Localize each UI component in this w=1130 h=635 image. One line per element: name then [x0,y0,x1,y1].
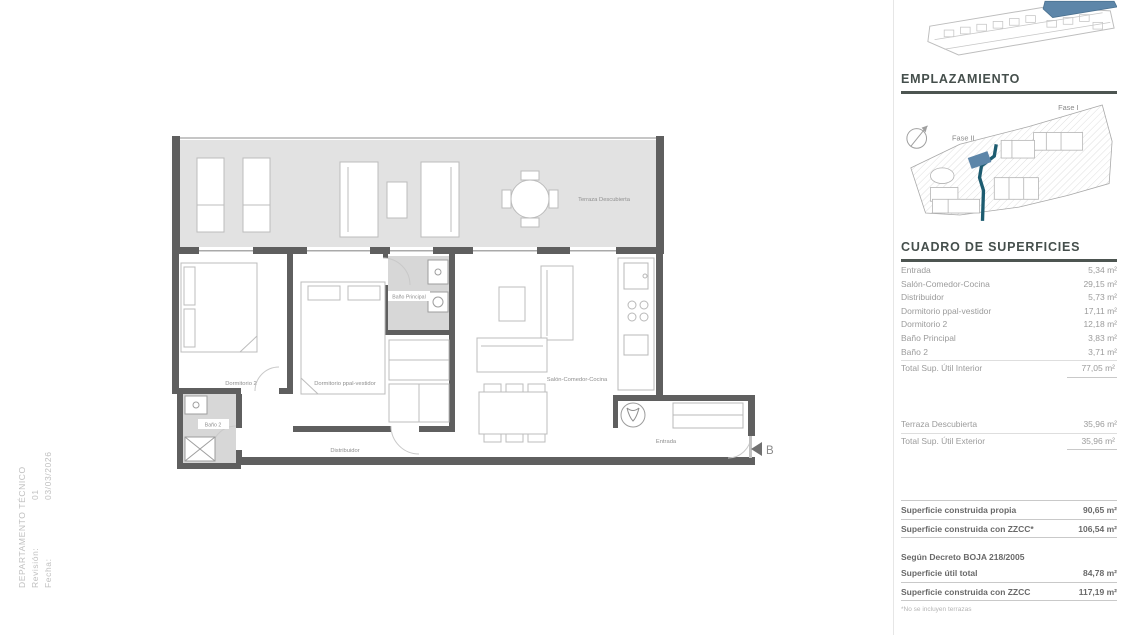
label-distribuidor: Distribuidor [330,448,359,454]
terrace-sofa [340,162,378,237]
pillow [308,286,340,300]
footnote: *No se incluyen terrazas [901,606,1117,613]
entrance-fittings [621,403,743,428]
chair [506,384,523,392]
bedroom2-furniture [181,263,257,352]
label-dormitorio-ppal: Dormitorio ppal-vestidor [314,381,376,387]
plan-sheet-page: { "titleblock": { "department": "DEPARTA… [0,0,1130,635]
table-row: Dormitorio 2 12,18 m² [901,318,1117,332]
summary-row: Superficie construida con ZZCC 117,19 m² [901,583,1117,602]
pillow [348,286,380,300]
row-label: Superficie útil total [901,569,978,578]
living-room-furniture [477,266,573,442]
emplazamiento-heading: EMPLAZAMIENTO [901,72,1117,94]
row-label: Baño 2 [901,346,928,360]
row-value: 12,18 m² [1083,318,1117,332]
row-label: Superficie construida propia [901,506,1016,515]
interior-total-row: Total Sup. Útil Interior 77,05 m² [901,360,1117,378]
label-entrada: Entrada [656,439,677,445]
row-label: Dormitorio 2 [901,318,947,332]
decree-heading: Según Decreto BOJA 218/2005 [901,552,1117,562]
built-surface-summary: Superficie construida propia 90,65 m² Su… [901,500,1117,613]
summary-row: Superficie útil total 84,78 m² [901,564,1117,583]
sink [428,260,448,284]
dining-table [479,392,547,434]
titleblock-revision: Revisión:01 [29,416,42,588]
row-value: 3,71 m² [1088,346,1117,360]
summary-row: Superficie construida propia 90,65 m² [901,501,1117,520]
row-value: 90,65 m² [1083,506,1117,515]
kitchen-counter [618,258,654,390]
site-plan: Fase I Fase II [901,96,1117,224]
chair [528,384,545,392]
building-axon-sketch [901,0,1117,62]
pillow [184,267,195,305]
revision-label: Revisión: [29,500,42,588]
terrace-round-table [511,180,549,218]
table-row: Distribuidor 5,73 m² [901,291,1117,305]
section-marker-letter: B [766,445,774,457]
coffee-table [499,287,525,321]
kitchen-sink [624,263,648,289]
pillow [184,309,195,347]
sun-lounger [243,158,270,232]
terrace-chair [521,171,539,180]
oven [624,335,648,355]
row-value: 117,19 m² [1079,588,1117,597]
row-label: Superficie construida con ZZCC [901,588,1030,597]
row-label: Total Sup. Útil Interior [901,362,982,376]
terrace-coffee-table [387,182,407,218]
sun-lounger [197,158,224,232]
chair [528,434,545,442]
row-value: 106,54 m² [1078,525,1117,534]
label-salon: Salón-Comedor-Cocina [547,377,608,383]
row-label: Total Sup. Útil Exterior [901,435,985,449]
label-bano2: Baño 2 [205,423,222,429]
titleblock: DEPARTAMENTO TÉCNICO Revisión:01 Fecha:0… [16,416,55,588]
row-value: 3,83 m² [1088,332,1117,346]
section-marker-b: B [751,442,774,457]
floor-plan-drawing: Terraza Descubierta Dormitorio 2 Dormito… [150,120,810,490]
exterior-total-row: Total Sup. Útil Exterior 35,96 m² [901,433,1117,451]
right-info-panel: EMPLAZAMIENTO [893,0,1130,635]
row-value: 29,15 m² [1083,278,1117,292]
label-dormitorio2: Dormitorio 2 [225,381,257,387]
table-row: Baño Principal 3,83 m² [901,332,1117,346]
terrace-sofa [421,162,459,237]
row-label: Distribuidor [901,291,944,305]
toilet [428,292,448,312]
fase1-label: Fase I [1058,103,1078,112]
superficies-heading: CUADRO DE SUPERFICIES [901,240,1117,262]
chair [506,434,523,442]
summary-row: Superficie construida con ZZCC* 106,54 m… [901,520,1117,539]
sofa [541,266,573,340]
date-value: 03/03/2026 [43,451,53,500]
row-value: 35,96 m² [1083,418,1117,432]
table-row: Salón-Comedor-Cocina 29,15 m² [901,278,1117,292]
section-arrow-icon [751,442,762,456]
table-row: Entrada 5,34 m² [901,264,1117,278]
row-value: 77,05 m² [1067,362,1117,378]
interior-surface-table: Entrada 5,34 m² Salón-Comedor-Cocina 29,… [901,264,1117,378]
row-value: 35,96 m² [1067,435,1117,451]
sink [185,396,207,414]
date-label: Fecha: [42,500,55,588]
north-compass-icon [907,126,928,149]
table-row: Dormitorio ppal-vestidor 17,11 m² [901,305,1117,319]
exterior-surface-table: Terraza Descubierta 35,96 m² Total Sup. … [901,418,1117,450]
brand-emblem [621,403,645,427]
titleblock-department: DEPARTAMENTO TÉCNICO [16,416,29,588]
revision-value: 01 [30,489,40,500]
row-value: 5,73 m² [1088,291,1117,305]
chair [484,384,501,392]
table-row: Baño 2 3,71 m² [901,346,1117,360]
table-row: Terraza Descubierta 35,96 m² [901,418,1117,432]
fase2-label: Fase II [952,133,975,142]
row-label: Terraza Descubierta [901,418,977,432]
row-label: Dormitorio ppal-vestidor [901,305,991,319]
chair [484,434,501,442]
row-label: Entrada [901,264,931,278]
terrace-chair [521,218,539,227]
terrace-chair [549,190,558,208]
terrace-chair [502,190,511,208]
row-value: 17,11 m² [1084,305,1117,319]
label-bano-principal: Baño Principal [392,295,425,301]
row-label: Salón-Comedor-Cocina [901,278,990,292]
row-label: Baño Principal [901,332,956,346]
row-value: 84,78 m² [1083,569,1117,578]
label-terraza: Terraza Descubierta [578,197,631,203]
row-value: 5,34 m² [1088,264,1117,278]
titleblock-date: Fecha:03/03/2026 [42,416,55,588]
row-label: Superficie construida con ZZCC* [901,525,1034,534]
sofa [477,338,547,372]
